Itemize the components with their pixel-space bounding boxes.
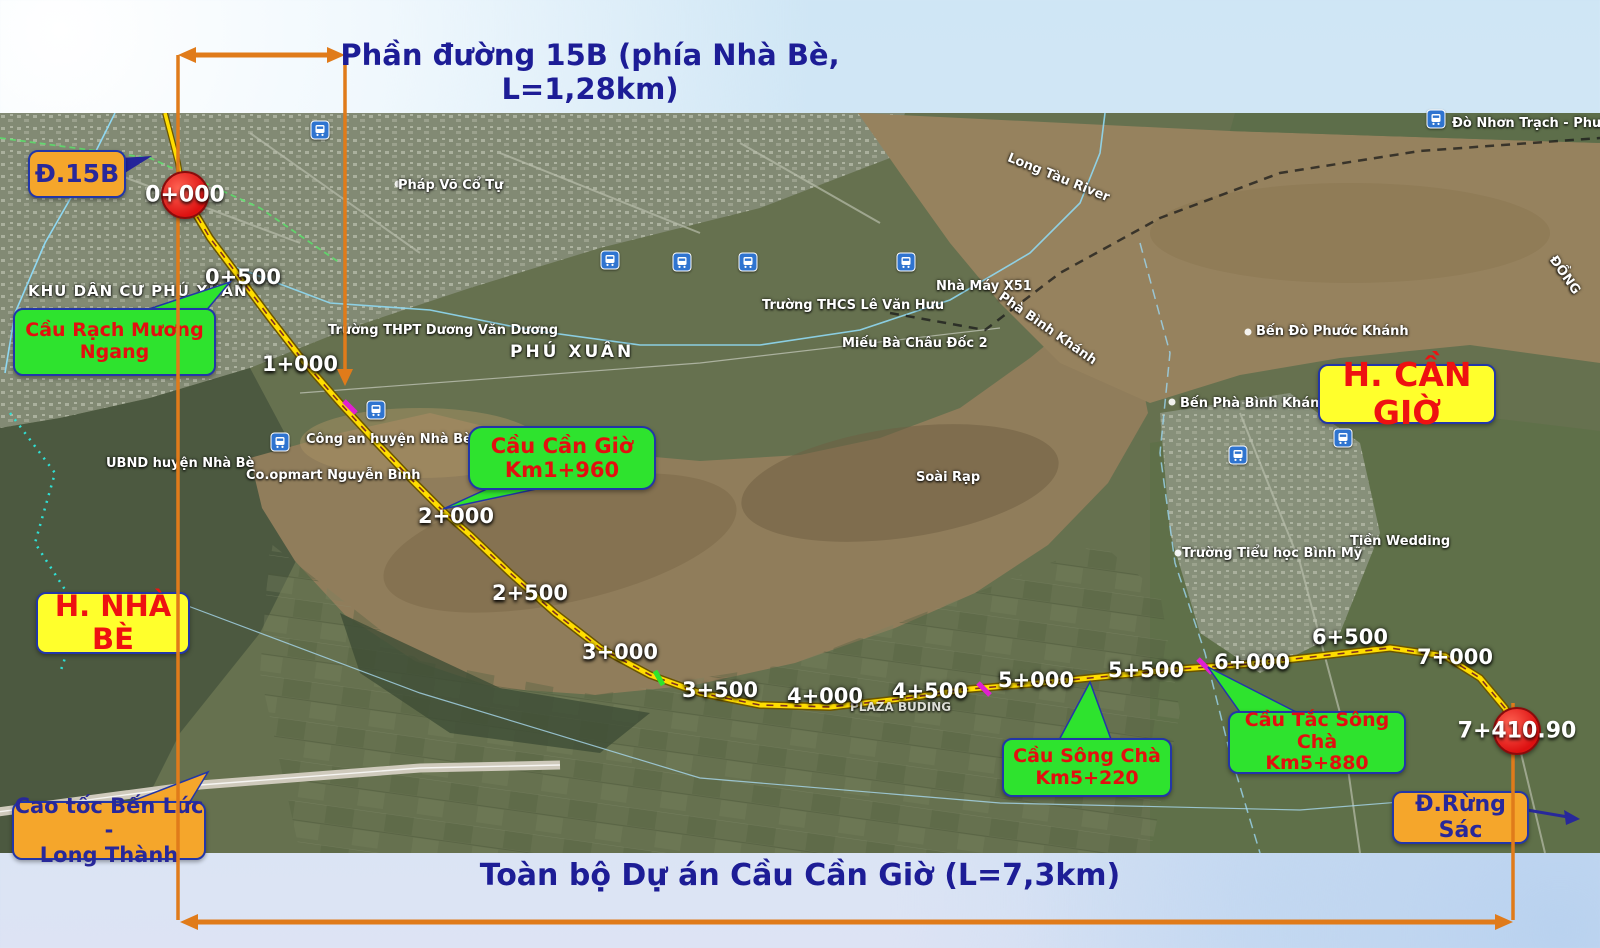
callout-h-can-gio: H. CẦN GIỜ — [1318, 364, 1496, 424]
callout-d15b-label: Đ.15B — [30, 160, 124, 189]
route-end-marker: 7+410.90 — [1493, 707, 1541, 755]
song-cha-line1: Cầu Sông Chà — [1004, 746, 1170, 768]
tac-song-cha-line1: Cầu Tắc Sông Chà — [1230, 710, 1404, 754]
header-title-line2: L=1,28km) — [180, 72, 1000, 106]
song-cha-line2: Km5+220 — [1004, 768, 1170, 790]
footer-title: Toàn bộ Dự án Cầu Cần Giờ (L=7,3km) — [0, 858, 1600, 893]
callout-cau-tac-song-cha: Cầu Tắc Sông Chà Km5+880 — [1228, 711, 1406, 774]
route-start-marker: 0+000 — [161, 171, 209, 219]
callout-h-nha-be: H. NHÀ BÈ — [36, 592, 190, 654]
route-start-chainage: 0+000 — [145, 183, 225, 208]
header-title-line1: Phần đường 15B (phía Nhà Bè, — [180, 38, 1000, 72]
rach-muong-line1: Cầu Rạch Mương — [15, 320, 214, 342]
header-title: Phần đường 15B (phía Nhà Bè, L=1,28km) — [180, 38, 1000, 106]
tac-song-cha-line2: Km5+880 — [1230, 753, 1404, 775]
h-nha-be-label: H. NHÀ BÈ — [38, 590, 188, 657]
callout-cao-toc: Cao tốc Bến Lức - Long Thành — [12, 801, 206, 860]
callout-rach-muong-ngang: Cầu Rạch Mương Ngang — [13, 308, 216, 376]
project-map-slide: { "page": { "header_line1": "Phần đường … — [0, 0, 1600, 948]
can-gio-line1: Cầu Cần Giờ — [470, 434, 654, 458]
callout-d15b: Đ.15B — [28, 150, 126, 198]
callout-rung-sac: Đ.Rừng Sác — [1392, 791, 1529, 844]
can-gio-line2: Km1+960 — [470, 458, 654, 482]
route-end-chainage: 7+410.90 — [1458, 719, 1577, 744]
callout-cau-can-gio: Cầu Cần Giờ Km1+960 — [468, 426, 656, 490]
rung-sac-label: Đ.Rừng Sác — [1394, 792, 1527, 843]
h-can-gio-label: H. CẦN GIỜ — [1320, 356, 1494, 432]
rach-muong-line2: Ngang — [15, 342, 214, 364]
cao-toc-line1: Cao tốc Bến Lức - — [14, 794, 204, 842]
callout-cau-song-cha: Cầu Sông Chà Km5+220 — [1002, 738, 1172, 797]
